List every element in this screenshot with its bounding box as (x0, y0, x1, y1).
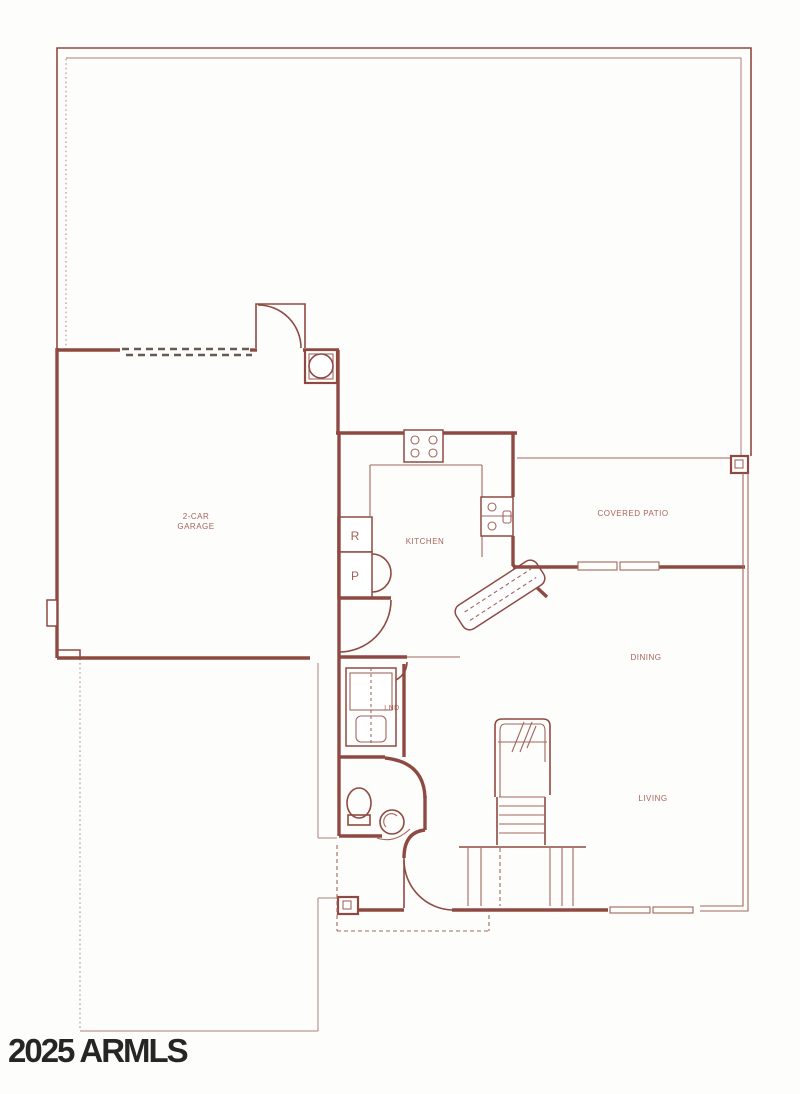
stair-direction-hashes (512, 722, 536, 752)
front-door (404, 858, 452, 910)
pantry-label: P (351, 569, 359, 583)
refrigerator-label: R (351, 529, 360, 543)
garage-walls (47, 304, 339, 660)
property-boundary (57, 48, 751, 456)
kitchen-sink-icon (481, 497, 513, 536)
garage-label-line2: GARAGE (177, 522, 214, 531)
staircase (459, 719, 586, 906)
living-label: LIVING (638, 794, 667, 803)
armls-watermark: 2025 ARMLS (8, 1032, 188, 1069)
toilet-icon (347, 788, 371, 825)
bathroom (339, 758, 425, 858)
entry-wall (338, 897, 693, 914)
stove-icon (404, 430, 443, 462)
garage-label-line1: 2-CAR (183, 512, 210, 521)
laundry-label: LND (384, 705, 400, 712)
garage-side-niche (47, 600, 57, 626)
exterior-right-wall (700, 563, 748, 911)
pantry-box (338, 552, 391, 598)
water-heater-icon (305, 350, 337, 383)
floorplan-page: 2-CAR GARAGE KITCHEN COVERED PATIO DININ… (0, 0, 800, 1094)
patio-label: COVERED PATIO (597, 509, 668, 518)
patio-post (731, 456, 748, 473)
driveway-slab (80, 663, 337, 1031)
porch-columns (468, 848, 573, 906)
dining-window (578, 562, 659, 570)
living-window (610, 907, 693, 913)
kitchen-label: KITCHEN (406, 537, 445, 546)
laundry-room (338, 652, 460, 836)
entry-post (338, 897, 358, 914)
dining-label: DINING (631, 653, 662, 662)
floorplan-drawing: 2-CAR GARAGE KITCHEN COVERED PATIO DININ… (0, 0, 800, 1094)
